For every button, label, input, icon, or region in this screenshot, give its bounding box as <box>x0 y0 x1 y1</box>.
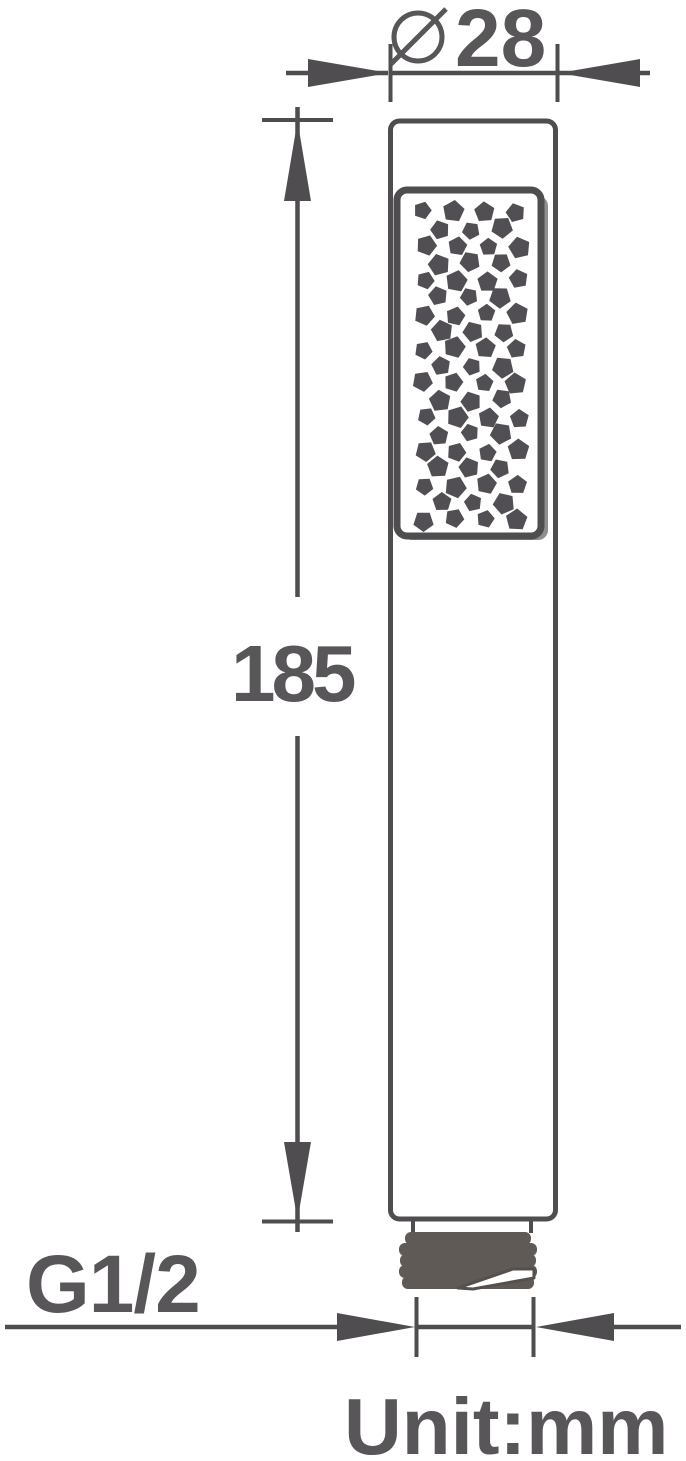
body-length-dimension: 185 <box>231 107 355 1232</box>
arrow-right-icon <box>308 59 389 87</box>
thread-size-label: G1/2 <box>26 1239 200 1330</box>
thread-connector <box>399 1232 537 1289</box>
arrow-left-icon <box>536 1313 614 1341</box>
head-diameter-dimension: 28 <box>286 0 650 102</box>
arrow-left-icon <box>559 59 640 87</box>
arrow-up-icon <box>284 121 311 201</box>
length-value-label: 185 <box>231 629 355 718</box>
shower-wand <box>391 121 556 1289</box>
arrow-down-icon <box>284 1142 311 1220</box>
diameter-value-label: 28 <box>455 0 546 84</box>
unit-label: Unit:mm <box>344 1382 668 1461</box>
drawing-svg: 28 185 <box>0 0 686 1461</box>
arrow-right-icon <box>337 1313 415 1341</box>
diameter-symbol-icon <box>391 9 446 64</box>
shower-wand-technical-drawing: 28 185 <box>0 0 686 1461</box>
thread-diameter-dimension: G1/2 <box>5 1239 681 1357</box>
